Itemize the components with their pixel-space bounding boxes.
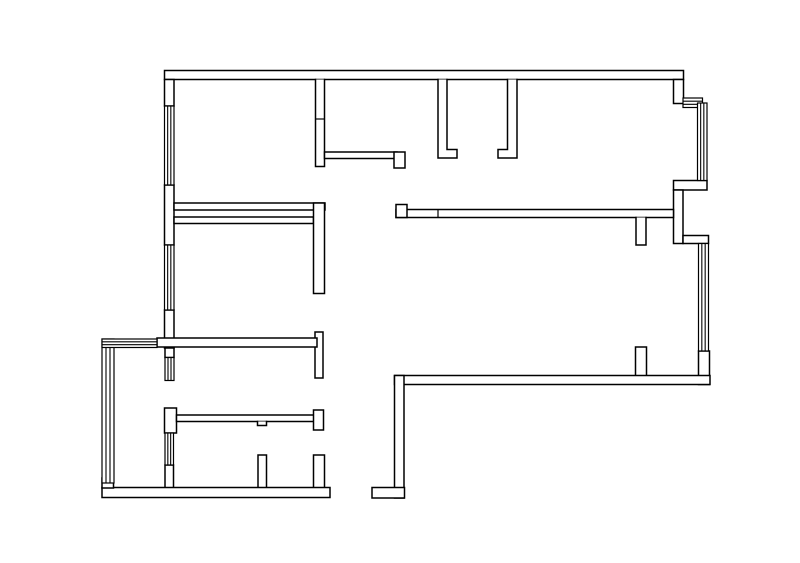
midroom-bottom-wall <box>157 338 317 347</box>
window-bathroom-left <box>165 433 174 465</box>
bottomroom-top-cap <box>314 410 324 430</box>
room2-bottom-wall <box>325 152 398 159</box>
window-balcony-door <box>165 358 174 381</box>
door-jamb-left-wall <box>438 80 457 159</box>
livingroom-bottom-wall <box>395 376 711 385</box>
left-wall-low-b <box>165 465 174 488</box>
window-bay-right <box>698 103 708 181</box>
midroom-top-wall <box>174 217 314 224</box>
left-cap-bottom-room <box>165 408 177 433</box>
livingroom-top-cap <box>396 205 407 218</box>
window-balcony-top <box>102 339 157 348</box>
entry-corridor-wall <box>395 376 405 499</box>
left-wall-mid-a <box>165 185 175 245</box>
top-wall <box>165 71 684 80</box>
floorplan-svg <box>0 0 800 563</box>
floorplan-page <box>0 0 800 563</box>
topright-corner-wall <box>674 80 684 104</box>
room1-bottom-wall <box>174 203 325 210</box>
window-balcony-left <box>102 339 114 483</box>
dining-stub-top-wall <box>636 218 646 246</box>
window-bedroom2-left <box>165 245 175 310</box>
window-bedroom1-left <box>165 106 175 185</box>
door-jamb-right-wall <box>498 80 517 159</box>
room2-bottom-cap <box>394 152 405 168</box>
dining-stub-bottom-wall <box>636 347 647 376</box>
left-wall-upper <box>165 80 175 107</box>
room1-right-wall-wall <box>316 80 325 167</box>
bottom-wall <box>102 488 330 498</box>
left-wall-low-a <box>165 348 174 358</box>
window-livingroom-right <box>699 244 709 352</box>
hall-left-wall-a <box>314 203 325 294</box>
entry-foot-wall <box>372 488 405 499</box>
right-wall-upper <box>674 190 684 244</box>
bathroom-divider-stub-wall <box>258 455 267 488</box>
bay-bottom-wall <box>674 181 708 191</box>
hall-left-wall-c-wall <box>314 455 325 488</box>
right-jog-wall <box>683 236 709 244</box>
bottomroom-top-notch-wall <box>258 422 267 426</box>
bottomroom-top-wall <box>177 415 318 422</box>
